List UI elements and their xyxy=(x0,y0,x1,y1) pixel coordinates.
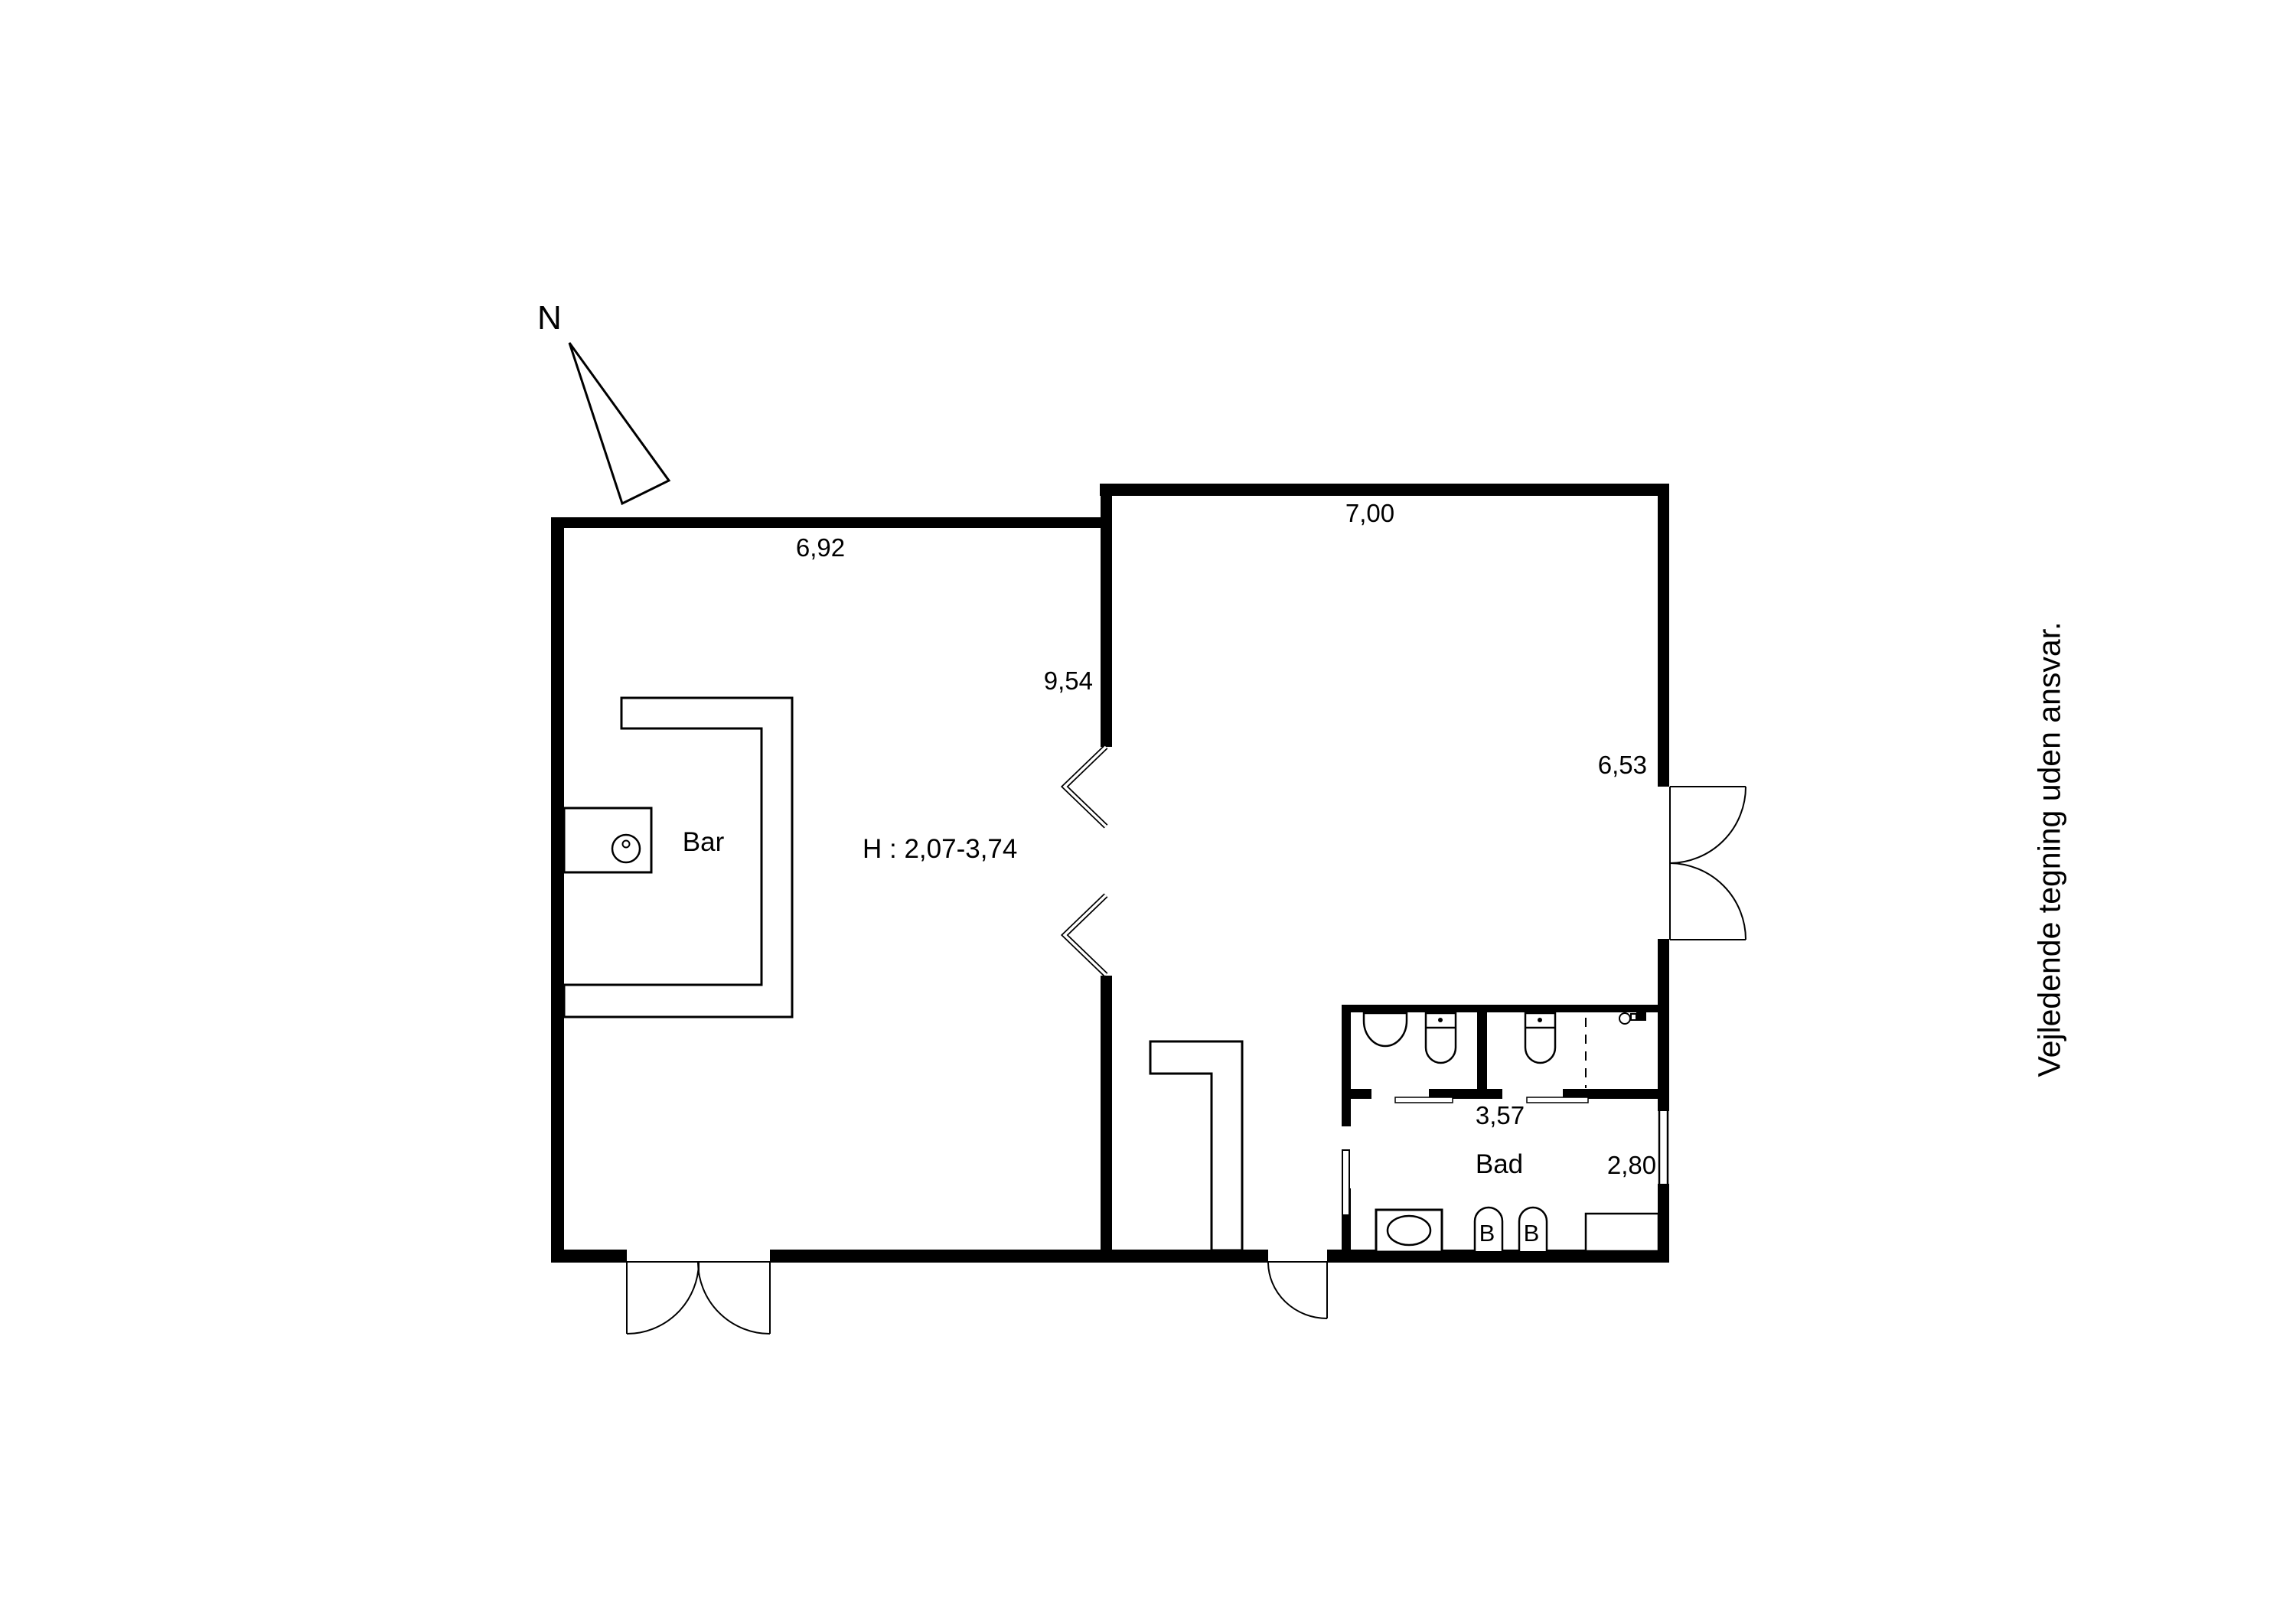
room-label-bar: Bar xyxy=(646,829,761,855)
bar-sink-drain xyxy=(623,841,630,848)
fixture-label-b2: B xyxy=(1508,1221,1554,1245)
fixture-label-b1: B xyxy=(1464,1221,1510,1245)
dimension-wc-width: 3,57 xyxy=(1443,1103,1557,1128)
dimension-bad-width: 2,80 xyxy=(1574,1152,1689,1178)
bad-counter xyxy=(1586,1214,1658,1251)
room-label-bad: Bad xyxy=(1442,1151,1557,1178)
dimension-hall-width: 6,92 xyxy=(763,535,878,560)
wc-basin xyxy=(1364,1013,1407,1046)
folding-door-symbols xyxy=(1065,747,1106,975)
valve-fixture-icon xyxy=(1619,1013,1645,1024)
dimension-hall-depth: 9,54 xyxy=(978,668,1093,693)
ceiling-height-label: H : 2,07-3,74 xyxy=(863,836,1017,862)
bad-door-leaf xyxy=(1342,1150,1349,1215)
wc-fixtures xyxy=(1364,1013,1645,1088)
north-arrow-icon xyxy=(569,343,669,504)
bar-sink-basin xyxy=(612,835,640,862)
bar-counter xyxy=(564,698,792,1017)
north-label: N xyxy=(537,301,562,335)
double-door-south xyxy=(627,1262,770,1334)
partition-counter xyxy=(1150,1041,1242,1250)
dimension-main-depth: 6,53 xyxy=(1532,752,1647,777)
double-door-east xyxy=(1670,787,1746,940)
floor-plan-canvas: N 6,92 7,00 9,54 6,53 H : 2,07-3,74 Bar … xyxy=(0,0,2296,1623)
floor-plan-drawing xyxy=(0,0,2296,1623)
bar-sink-unit xyxy=(564,808,651,872)
exterior-walls xyxy=(551,484,1669,1263)
disclaimer-text: Vejledende tegning uden ansvar. xyxy=(2034,621,2066,1077)
dimension-main-width: 7,00 xyxy=(1313,500,1427,526)
washer-drum xyxy=(1388,1216,1430,1245)
single-door-south xyxy=(1268,1262,1327,1318)
